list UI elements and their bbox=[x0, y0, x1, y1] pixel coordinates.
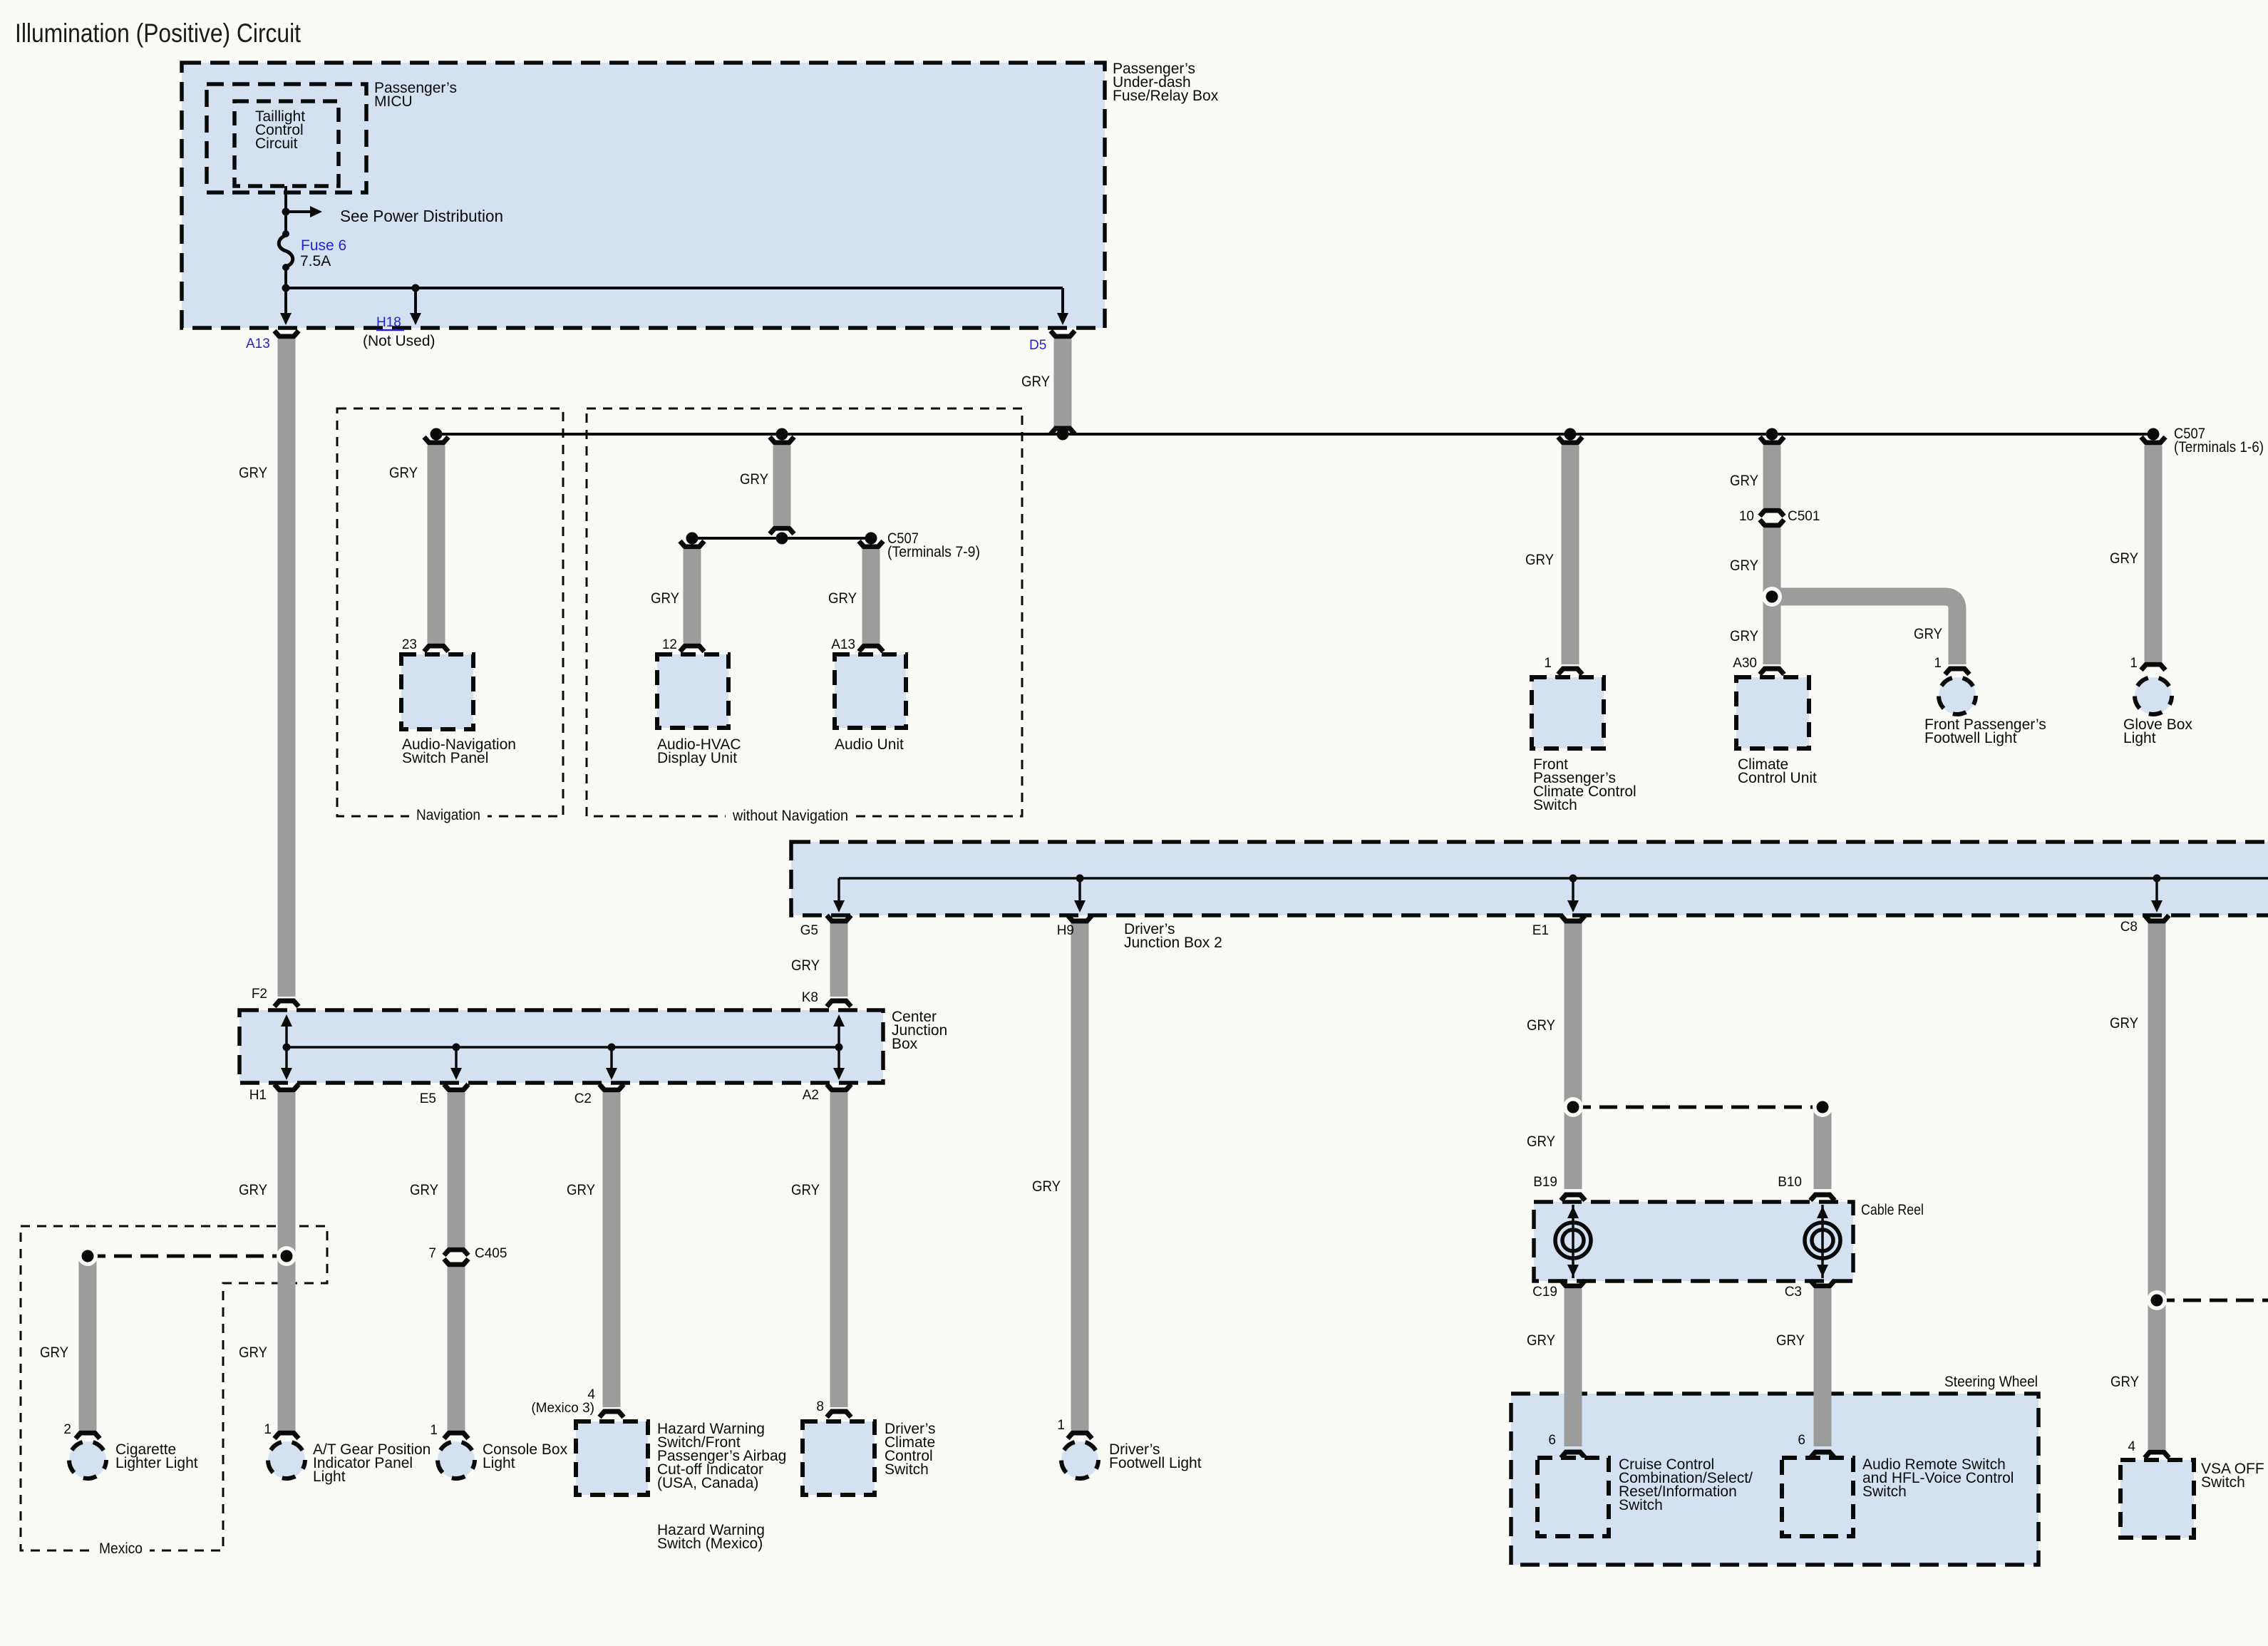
svg-text:GRY: GRY bbox=[791, 957, 820, 974]
svg-text:1: 1 bbox=[1057, 1418, 1065, 1433]
svg-text:C501: C501 bbox=[1788, 509, 1820, 524]
svg-text:(Terminals 1-6): (Terminals 1-6) bbox=[2174, 439, 2264, 456]
svg-text:6: 6 bbox=[1798, 1433, 1805, 1448]
svg-text:Box: Box bbox=[892, 1036, 918, 1052]
svg-text:Fuse/Relay Box: Fuse/Relay Box bbox=[1113, 88, 1219, 104]
svg-text:Fuse 6: Fuse 6 bbox=[301, 237, 346, 254]
svg-text:(USA, Canada): (USA, Canada) bbox=[657, 1475, 758, 1491]
svg-text:C2: C2 bbox=[574, 1091, 592, 1106]
svg-text:GRY: GRY bbox=[1527, 1017, 1555, 1034]
svg-text:GRY: GRY bbox=[1525, 552, 1554, 568]
svg-text:Circuit: Circuit bbox=[255, 135, 298, 152]
svg-text:H9: H9 bbox=[1057, 923, 1074, 938]
svg-text:GRY: GRY bbox=[1776, 1332, 1805, 1349]
svg-text:Display Unit: Display Unit bbox=[657, 750, 737, 766]
svg-text:Switch Panel: Switch Panel bbox=[402, 750, 488, 766]
svg-text:D5: D5 bbox=[1029, 338, 1046, 353]
svg-text:GRY: GRY bbox=[389, 465, 418, 481]
svg-text:GRY: GRY bbox=[1730, 557, 1758, 574]
svg-text:GRY: GRY bbox=[1021, 374, 1050, 390]
svg-text:GRY: GRY bbox=[1730, 628, 1758, 644]
svg-text:GRY: GRY bbox=[567, 1182, 595, 1198]
svg-text:Switch (Mexico): Switch (Mexico) bbox=[657, 1536, 763, 1552]
svg-text:7: 7 bbox=[428, 1246, 436, 1261]
svg-text:(Not Used): (Not Used) bbox=[363, 333, 435, 349]
svg-text:See Power Distribution: See Power Distribution bbox=[340, 207, 503, 225]
svg-text:Audio Unit: Audio Unit bbox=[835, 736, 904, 753]
svg-text:23: 23 bbox=[402, 637, 417, 652]
svg-text:A13: A13 bbox=[246, 336, 270, 351]
svg-text:4: 4 bbox=[2128, 1439, 2135, 1454]
svg-text:GRY: GRY bbox=[239, 1344, 267, 1361]
svg-text:Lighter Light: Lighter Light bbox=[115, 1455, 198, 1471]
svg-text:MICU: MICU bbox=[374, 93, 413, 110]
svg-text:GRY: GRY bbox=[239, 1182, 267, 1198]
svg-text:8: 8 bbox=[816, 1399, 824, 1414]
svg-text:1: 1 bbox=[1934, 656, 1942, 671]
svg-text:Switch: Switch bbox=[2201, 1474, 2245, 1491]
svg-text:6: 6 bbox=[1548, 1433, 1556, 1448]
svg-text:2: 2 bbox=[63, 1422, 71, 1437]
svg-text:GRY: GRY bbox=[2110, 550, 2138, 567]
svg-text:E5: E5 bbox=[420, 1091, 436, 1106]
svg-text:Control Unit: Control Unit bbox=[1738, 770, 1817, 786]
svg-text:Illumination (Positive) Circui: Illumination (Positive) Circuit bbox=[15, 19, 301, 48]
svg-text:K8: K8 bbox=[802, 990, 818, 1005]
svg-text:F2: F2 bbox=[252, 987, 267, 1002]
svg-text:4: 4 bbox=[587, 1387, 595, 1402]
svg-text:Light: Light bbox=[313, 1468, 346, 1485]
svg-text:Junction Box 2: Junction Box 2 bbox=[1124, 935, 1222, 951]
svg-text:Switch: Switch bbox=[1619, 1497, 1663, 1513]
svg-text:Navigation: Navigation bbox=[416, 807, 480, 823]
svg-text:1: 1 bbox=[2130, 656, 2138, 671]
svg-text:B19: B19 bbox=[1533, 1175, 1557, 1190]
svg-text:H1: H1 bbox=[249, 1088, 267, 1103]
svg-text:B10: B10 bbox=[1778, 1175, 1802, 1190]
svg-text:GRY: GRY bbox=[1032, 1178, 1061, 1195]
svg-text:1: 1 bbox=[430, 1423, 438, 1438]
svg-text:GRY: GRY bbox=[40, 1344, 68, 1361]
svg-text:GRY: GRY bbox=[1914, 626, 1942, 642]
svg-text:GRY: GRY bbox=[1730, 473, 1758, 489]
svg-text:H18: H18 bbox=[376, 315, 401, 330]
svg-text:Footwell Light: Footwell Light bbox=[1109, 1455, 1202, 1471]
svg-text:12: 12 bbox=[662, 637, 677, 652]
svg-text:Footwell Light: Footwell Light bbox=[1924, 730, 2017, 746]
svg-text:Light: Light bbox=[483, 1455, 515, 1471]
svg-text:Mexico: Mexico bbox=[99, 1540, 143, 1557]
svg-text:GRY: GRY bbox=[791, 1182, 820, 1198]
svg-text:1: 1 bbox=[1544, 656, 1552, 671]
svg-text:(Mexico 3): (Mexico 3) bbox=[531, 1401, 594, 1416]
svg-text:A30: A30 bbox=[1733, 656, 1757, 671]
svg-text:C8: C8 bbox=[2120, 920, 2138, 935]
svg-text:GRY: GRY bbox=[740, 471, 768, 488]
svg-text:GRY: GRY bbox=[1527, 1332, 1555, 1349]
svg-text:GRY: GRY bbox=[2110, 1015, 2138, 1032]
svg-text:GRY: GRY bbox=[410, 1182, 438, 1198]
svg-text:A13: A13 bbox=[831, 637, 855, 652]
svg-text:E1: E1 bbox=[1532, 923, 1549, 938]
svg-text:GRY: GRY bbox=[828, 590, 857, 607]
svg-text:(Terminals 7-9): (Terminals 7-9) bbox=[887, 544, 980, 560]
svg-text:Cable Reel: Cable Reel bbox=[1861, 1202, 1924, 1218]
svg-text:C405: C405 bbox=[475, 1246, 507, 1261]
svg-text:Steering Wheel: Steering Wheel bbox=[1944, 1374, 2038, 1390]
svg-text:GRY: GRY bbox=[239, 465, 267, 481]
svg-text:GRY: GRY bbox=[1527, 1133, 1555, 1150]
svg-text:1: 1 bbox=[264, 1422, 272, 1437]
svg-text:GRY: GRY bbox=[651, 590, 679, 607]
svg-text:without Navigation: without Navigation bbox=[732, 808, 848, 824]
svg-text:10: 10 bbox=[1739, 509, 1754, 524]
svg-text:G5: G5 bbox=[800, 923, 818, 938]
svg-text:A2: A2 bbox=[803, 1088, 819, 1103]
svg-text:C3: C3 bbox=[1785, 1285, 1802, 1300]
svg-text:Switch: Switch bbox=[1533, 797, 1577, 813]
svg-text:Switch: Switch bbox=[1862, 1483, 1907, 1500]
svg-text:Switch: Switch bbox=[885, 1461, 929, 1478]
svg-text:C19: C19 bbox=[1532, 1285, 1557, 1300]
svg-text:GRY: GRY bbox=[2110, 1374, 2139, 1390]
svg-text:Light: Light bbox=[2123, 730, 2156, 746]
svg-text:7.5A: 7.5A bbox=[300, 253, 331, 269]
